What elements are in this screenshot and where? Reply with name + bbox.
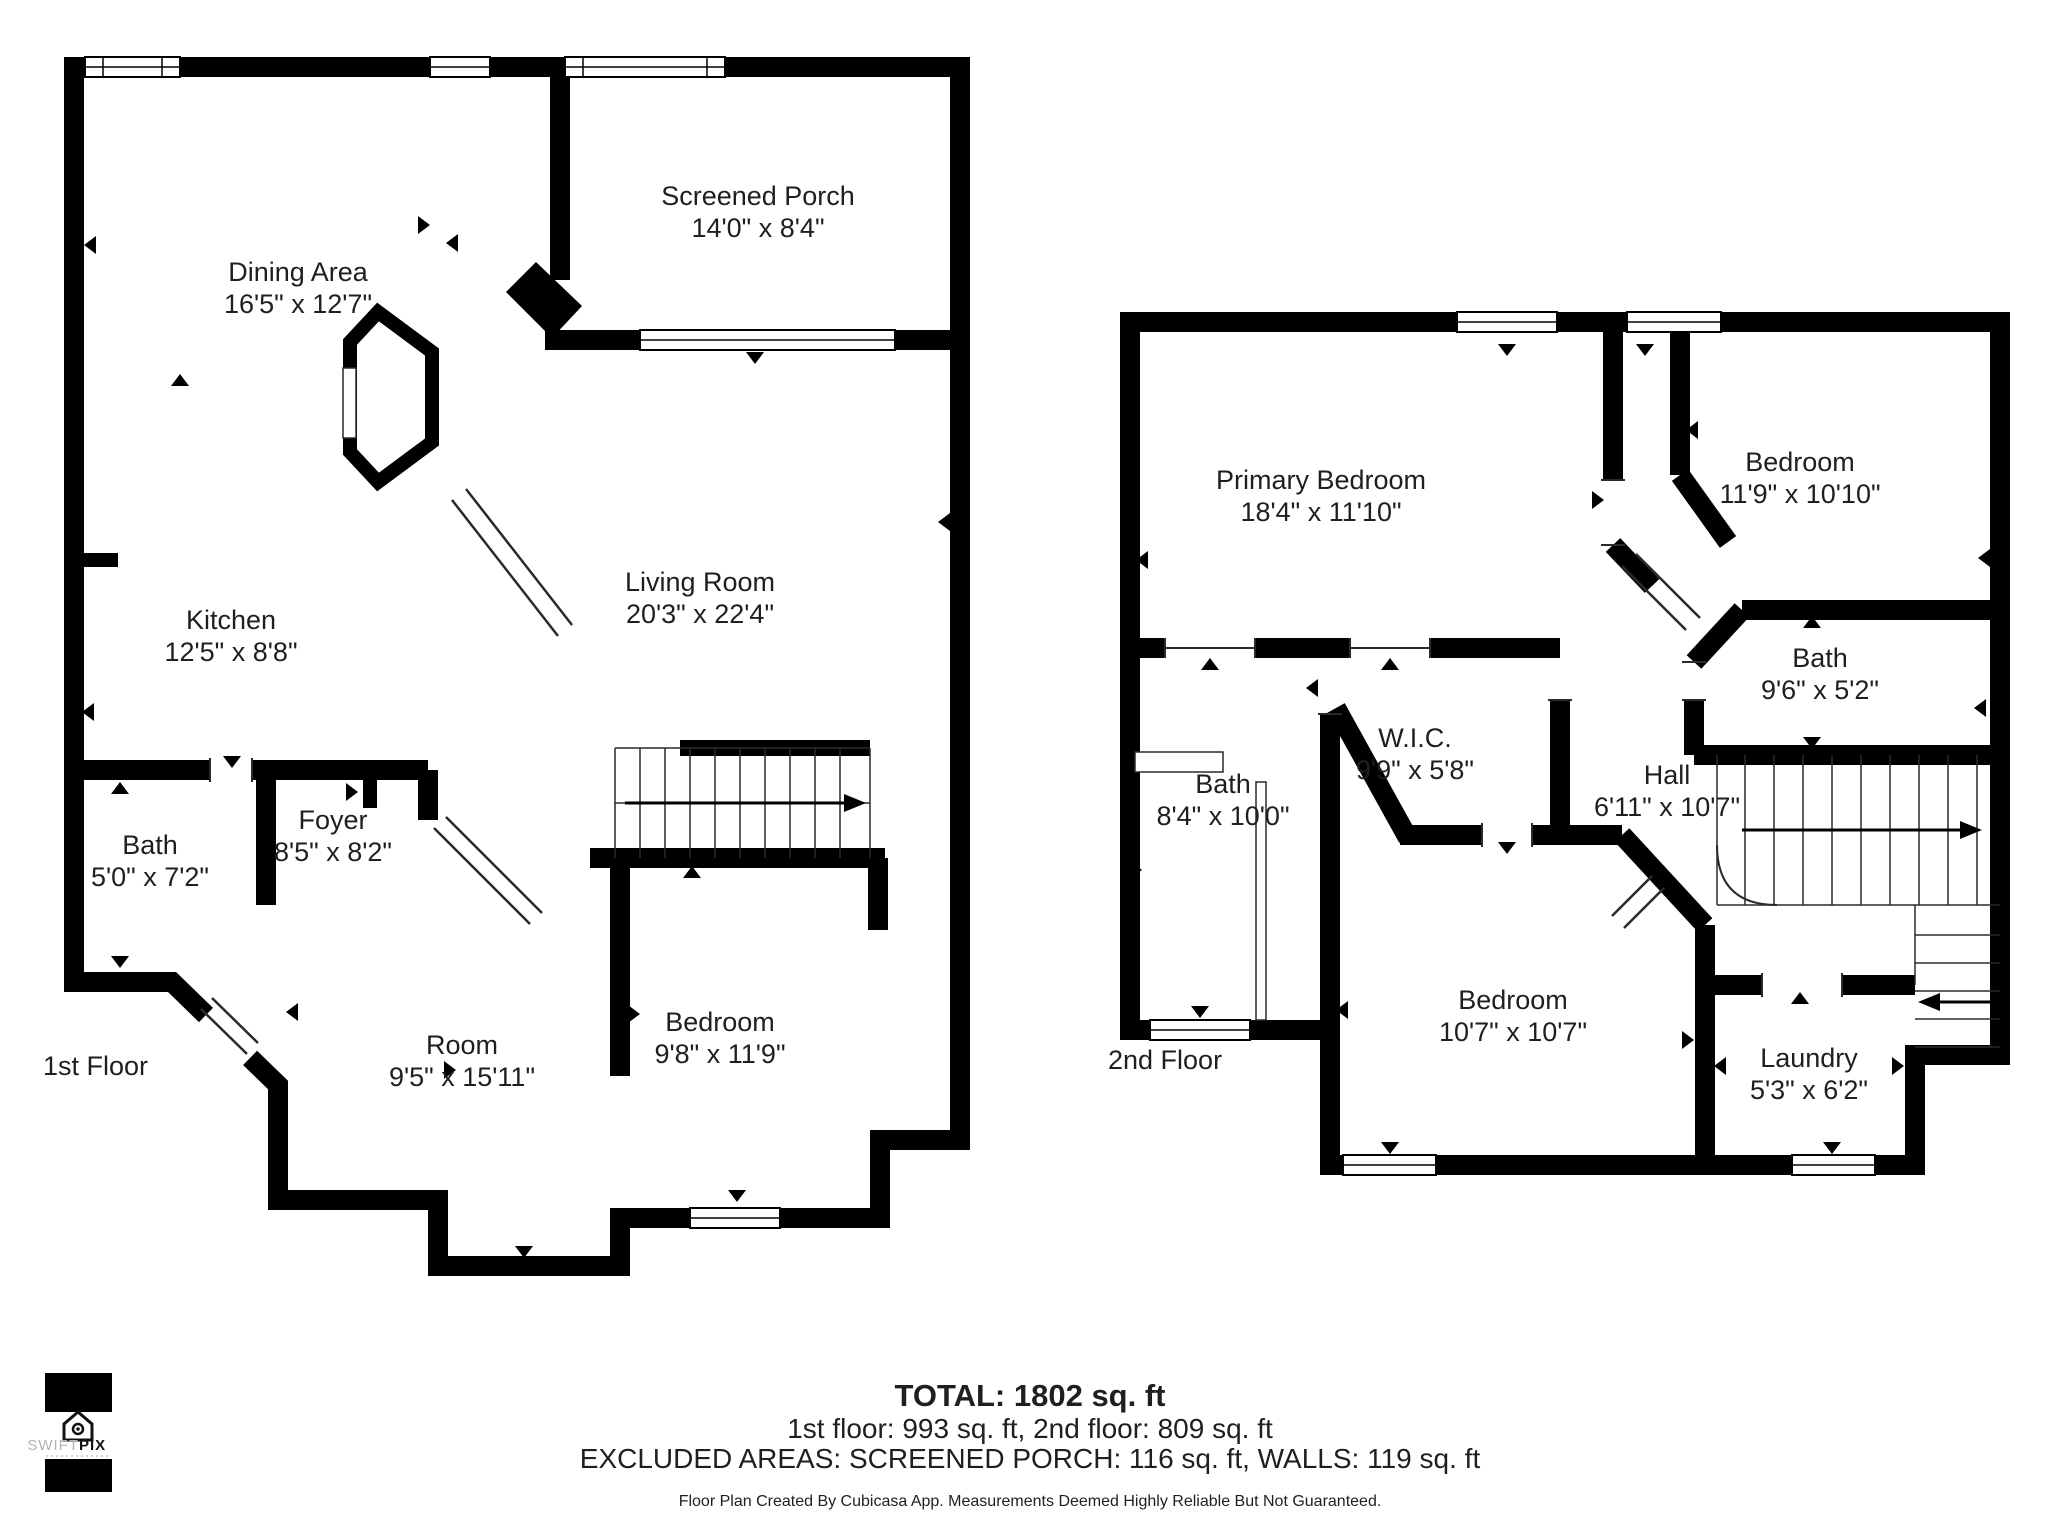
room-label-living-room: Living Room bbox=[625, 567, 775, 597]
staircase-first-floor bbox=[615, 748, 870, 858]
first-floor-door-swings bbox=[434, 489, 572, 924]
window bbox=[1457, 312, 1557, 332]
logo-text-pix: PIX bbox=[79, 1437, 106, 1454]
summary-block: TOTAL: 1802 sq. ft 1st floor: 993 sq. ft… bbox=[580, 1378, 1481, 1510]
room-dims-dining-area: 16'5" x 12'7" bbox=[224, 289, 372, 319]
stair2-lower-arrow-icon bbox=[1918, 993, 1940, 1011]
stair-direction-arrow-icon bbox=[844, 794, 866, 812]
logo-text-swift: SWIFT bbox=[27, 1437, 79, 1454]
room-dims-screened-porch: 14'0" x 8'4" bbox=[691, 213, 824, 243]
room-dims-bedroom-tr: 11'9" x 10'10" bbox=[1719, 479, 1880, 509]
logo-top-block bbox=[45, 1373, 112, 1412]
room-dims-room: 9'5" x 15'11" bbox=[389, 1062, 535, 1092]
window bbox=[640, 330, 895, 350]
floor-areas-text: 1st floor: 993 sq. ft, 2nd floor: 809 sq… bbox=[787, 1413, 1273, 1444]
first-floor-labels: Dining Area 16'5" x 12'7" Screened Porch… bbox=[91, 181, 855, 1092]
window bbox=[1627, 312, 1721, 332]
room-dims-bedroom-bottom: 10'7" x 10'7" bbox=[1439, 1017, 1587, 1047]
room-label-foyer: Foyer bbox=[298, 805, 367, 835]
stair2-treads-lower bbox=[1915, 905, 2000, 1047]
room-label-hall: Hall bbox=[1644, 760, 1691, 790]
room-label-kitchen: Kitchen bbox=[186, 605, 276, 635]
room-label-bedroom-tr: Bedroom bbox=[1745, 447, 1855, 477]
window bbox=[430, 57, 490, 77]
room-dims-kitchen: 12'5" x 8'8" bbox=[164, 637, 297, 667]
room-dims-bath-right: 9'6" x 5'2" bbox=[1761, 675, 1879, 705]
room-label-laundry: Laundry bbox=[1760, 1043, 1858, 1073]
room-label-screened-porch: Screened Porch bbox=[661, 181, 855, 211]
room-dims-wic: 9'9" x 5'8" bbox=[1356, 755, 1474, 785]
staircase-second-floor bbox=[1717, 755, 2000, 1047]
nook-hexagon bbox=[343, 312, 432, 482]
total-area-text: TOTAL: 1802 sq. ft bbox=[894, 1378, 1165, 1413]
room-dims-bedroom-1f: 9'8" x 11'9" bbox=[654, 1039, 785, 1069]
room-label-wic: W.I.C. bbox=[1378, 723, 1452, 753]
room-label-bedroom-1f: Bedroom bbox=[665, 1007, 775, 1037]
porch-door-leaf bbox=[506, 262, 582, 338]
disclaimer-text: Floor Plan Created By Cubicasa App. Meas… bbox=[679, 1493, 1382, 1510]
window bbox=[1150, 1020, 1250, 1040]
room-dims-hall: 6'11" x 10'7" bbox=[1594, 792, 1740, 822]
window bbox=[1792, 1155, 1875, 1175]
floor-plan-canvas: Dining Area 16'5" x 12'7" Screened Porch… bbox=[0, 0, 2048, 1536]
room-dims-bath-left: 8'4" x 10'0" bbox=[1156, 801, 1289, 831]
first-floor-title: 1st Floor bbox=[43, 1051, 148, 1081]
room-label-room: Room bbox=[426, 1030, 498, 1060]
room-dims-bath-1: 5'0" x 7'2" bbox=[91, 862, 209, 892]
house-camera-icon bbox=[64, 1412, 92, 1440]
stair2-direction-arrow-icon bbox=[1960, 821, 1982, 839]
window bbox=[690, 1208, 780, 1228]
room-dims-primary-bedroom: 18'4" x 11'10" bbox=[1240, 497, 1401, 527]
swiftpix-logo: SWIFT PIX bbox=[27, 1373, 112, 1492]
window bbox=[85, 57, 180, 77]
room-label-primary-bedroom: Primary Bedroom bbox=[1216, 465, 1426, 495]
stair2-rail-curve bbox=[1717, 845, 1777, 905]
second-floor-plan: Primary Bedroom 18'4" x 11'10" Bedroom 1… bbox=[1108, 312, 2000, 1175]
room-dims-foyer: 8'5" x 8'2" bbox=[274, 837, 392, 867]
room-label-bath-left: Bath bbox=[1195, 769, 1251, 799]
room-label-bath-right: Bath bbox=[1792, 643, 1848, 673]
excluded-areas-text: EXCLUDED AREAS: SCREENED PORCH: 116 sq. … bbox=[580, 1443, 1481, 1474]
room-label-bath-1: Bath bbox=[122, 830, 178, 860]
window bbox=[565, 57, 725, 77]
first-floor-door-ticks bbox=[82, 216, 950, 1258]
first-floor-plan: Dining Area 16'5" x 12'7" Screened Porch… bbox=[43, 57, 960, 1266]
room-dims-laundry: 5'3" x 6'2" bbox=[1750, 1075, 1868, 1105]
logo-bottom-block bbox=[45, 1459, 112, 1492]
floor-plan-page: Dining Area 16'5" x 12'7" Screened Porch… bbox=[0, 0, 2048, 1536]
room-dims-living-room: 20'3" x 22'4" bbox=[626, 599, 774, 629]
room-label-dining-area: Dining Area bbox=[228, 257, 369, 287]
second-floor-title: 2nd Floor bbox=[1108, 1045, 1222, 1075]
room-label-bedroom-bottom: Bedroom bbox=[1458, 985, 1568, 1015]
window bbox=[1343, 1155, 1436, 1175]
